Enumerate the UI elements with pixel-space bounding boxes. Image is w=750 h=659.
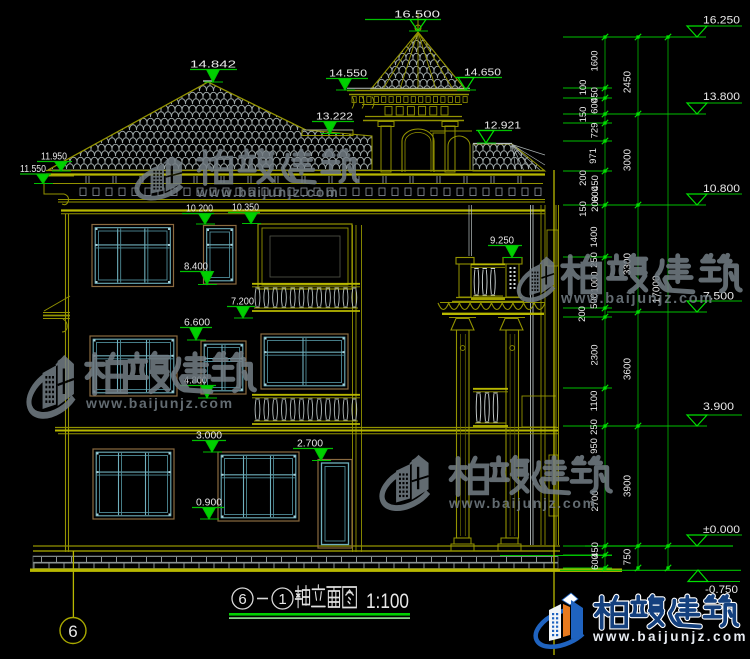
svg-text:750: 750 — [623, 548, 634, 565]
svg-text:1: 1 — [278, 591, 286, 608]
svg-text:10.350: 10.350 — [232, 203, 259, 214]
svg-text:1600: 1600 — [590, 51, 601, 72]
svg-text:200: 200 — [578, 170, 589, 186]
svg-text:12.921: 12.921 — [484, 121, 522, 132]
svg-text:3000: 3000 — [623, 148, 634, 171]
svg-text:www.baijunjz.com: www.baijunjz.com — [592, 629, 748, 644]
svg-text:729: 729 — [590, 123, 601, 139]
svg-text:8.400: 8.400 — [184, 262, 208, 273]
svg-text:13.800: 13.800 — [703, 91, 740, 103]
svg-text:11.550: 11.550 — [20, 164, 46, 175]
svg-text:www.baijunjz.com: www.baijunjz.com — [448, 495, 597, 511]
svg-text:600: 600 — [590, 554, 601, 570]
svg-text:250: 250 — [589, 419, 600, 435]
svg-text:600: 600 — [590, 98, 601, 114]
svg-text:0.900: 0.900 — [196, 498, 222, 509]
svg-text:9.250: 9.250 — [490, 236, 514, 247]
svg-text:7.200: 7.200 — [231, 297, 254, 308]
svg-text:150: 150 — [578, 201, 589, 217]
svg-text:2.700: 2.700 — [297, 439, 323, 450]
svg-text:3.900: 3.900 — [703, 401, 734, 413]
svg-text:16.500: 16.500 — [394, 10, 441, 21]
svg-text:950: 950 — [589, 438, 600, 454]
svg-text:200: 200 — [577, 306, 588, 322]
svg-text:14.550: 14.550 — [329, 69, 368, 80]
svg-text:2450: 2450 — [623, 70, 634, 93]
svg-text:10.800: 10.800 — [703, 183, 740, 195]
svg-text:200: 200 — [590, 196, 601, 212]
svg-text:16.250: 16.250 — [703, 15, 740, 27]
svg-text:1:100: 1:100 — [366, 590, 409, 613]
svg-text:6: 6 — [238, 591, 246, 608]
svg-text:www.baijunjz.com: www.baijunjz.com — [560, 291, 714, 307]
svg-text:3600: 3600 — [623, 357, 634, 380]
svg-text:www.baijunjz.com: www.baijunjz.com — [85, 395, 234, 411]
svg-text:11.950: 11.950 — [41, 152, 67, 163]
svg-text:13.222: 13.222 — [316, 112, 354, 123]
svg-text:3.000: 3.000 — [196, 431, 222, 442]
svg-text:100: 100 — [578, 80, 589, 96]
svg-text:14.842: 14.842 — [190, 60, 237, 71]
svg-text:971: 971 — [588, 148, 599, 164]
svg-text:1400: 1400 — [589, 227, 600, 248]
svg-text:±0.000: ±0.000 — [703, 524, 740, 536]
svg-text:6.600: 6.600 — [184, 318, 210, 329]
svg-text:14.650: 14.650 — [464, 68, 502, 79]
svg-text:1100: 1100 — [589, 391, 600, 412]
svg-text:www.baijunjz.com: www.baijunjz.com — [196, 185, 339, 200]
svg-text:3900: 3900 — [623, 474, 634, 497]
svg-text:6: 6 — [68, 622, 77, 641]
svg-text:2300: 2300 — [590, 345, 601, 366]
svg-text:10.200: 10.200 — [186, 204, 213, 215]
svg-text:150: 150 — [578, 107, 589, 123]
